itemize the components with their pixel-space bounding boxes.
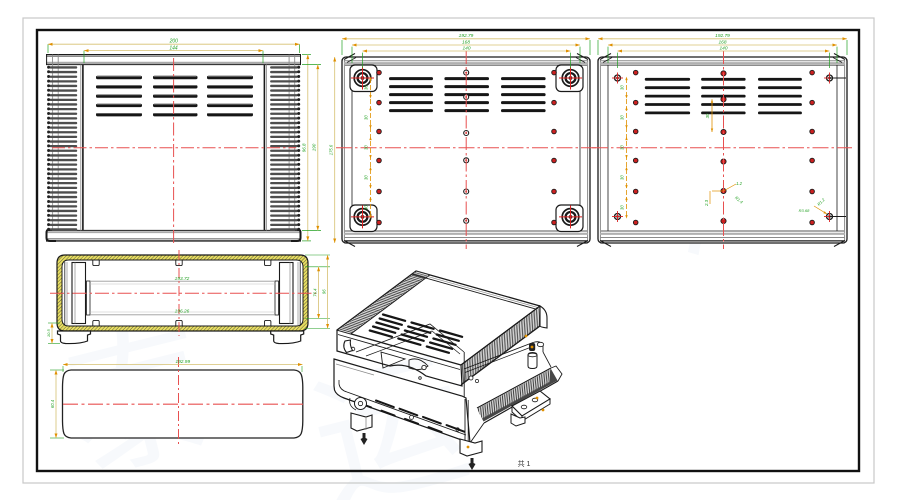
svg-text:193.72: 193.72 bbox=[175, 276, 190, 282]
svg-text:30: 30 bbox=[620, 205, 625, 210]
svg-text:144: 144 bbox=[169, 45, 178, 51]
svg-text:96.8: 96.8 bbox=[302, 143, 307, 152]
svg-text:30: 30 bbox=[364, 205, 369, 210]
svg-text:175.6: 175.6 bbox=[329, 144, 334, 155]
svg-text:96: 96 bbox=[321, 289, 326, 294]
svg-text:R3.68: R3.68 bbox=[799, 208, 810, 213]
svg-text:196.26: 196.26 bbox=[175, 308, 190, 314]
svg-text:192.79: 192.79 bbox=[459, 33, 474, 39]
svg-text:30: 30 bbox=[364, 85, 369, 90]
svg-text:30: 30 bbox=[705, 113, 710, 118]
svg-text:30: 30 bbox=[620, 115, 625, 120]
svg-text:30: 30 bbox=[620, 145, 625, 150]
svg-text:140: 140 bbox=[719, 46, 727, 52]
svg-text:192.99: 192.99 bbox=[175, 359, 190, 365]
svg-text:140: 140 bbox=[462, 46, 470, 52]
svg-text:1.2: 1.2 bbox=[736, 181, 742, 186]
svg-text:60.4: 60.4 bbox=[50, 399, 55, 408]
svg-text:2.3: 2.3 bbox=[704, 199, 709, 206]
svg-text:192.79: 192.79 bbox=[715, 33, 730, 39]
svg-text:168: 168 bbox=[462, 40, 470, 46]
svg-text:共 1: 共 1 bbox=[518, 459, 531, 468]
svg-text:200: 200 bbox=[169, 39, 179, 45]
svg-text:30: 30 bbox=[364, 145, 369, 150]
svg-text:30: 30 bbox=[364, 115, 369, 120]
svg-text:10.5: 10.5 bbox=[46, 329, 51, 338]
svg-text:30: 30 bbox=[620, 85, 625, 90]
svg-text:30: 30 bbox=[620, 175, 625, 180]
svg-text:168: 168 bbox=[718, 40, 726, 46]
svg-text:190: 190 bbox=[312, 143, 317, 151]
svg-text:30: 30 bbox=[364, 175, 369, 180]
svg-text:76.4: 76.4 bbox=[312, 288, 317, 297]
